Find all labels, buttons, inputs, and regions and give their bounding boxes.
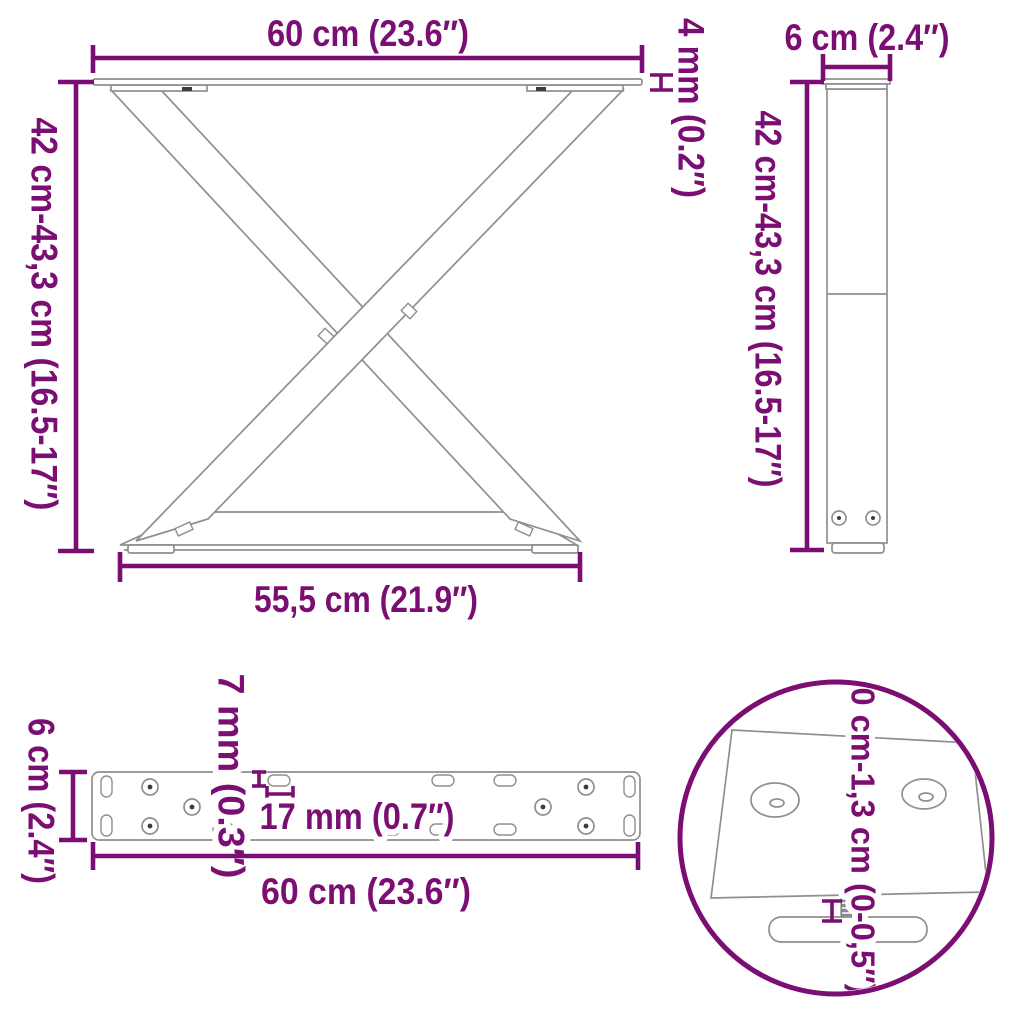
slot-length-label: 17 mm (0.7″) bbox=[260, 796, 455, 837]
front-left-foot bbox=[128, 545, 174, 553]
side-bracket-edge bbox=[826, 84, 887, 89]
front-left-bracket-bolt bbox=[182, 87, 192, 91]
screw-hole-center bbox=[190, 805, 195, 810]
front-bottom-width-label: 55,5 cm (21.9″) bbox=[254, 579, 478, 620]
side-column bbox=[827, 89, 887, 543]
front-view: 60 cm (23.6″) 42 cm-43,3 cm (16.5-17″) 4… bbox=[24, 13, 712, 620]
front-right-bracket-bolt bbox=[536, 87, 546, 91]
plate-thickness-label: 4 mm (0.2″) bbox=[671, 18, 712, 198]
screw-center bbox=[837, 516, 841, 520]
slot bbox=[101, 815, 112, 836]
slot bbox=[624, 815, 635, 836]
slot bbox=[101, 776, 112, 797]
plate-top-view: 6 cm (2.4″) 7 mm (0.3″) 17 mm (0.7″) 60 … bbox=[21, 674, 641, 913]
side-height-label: 42 cm-43,3 cm (16.5-17″) bbox=[748, 111, 789, 488]
slot bbox=[624, 776, 635, 797]
dimension-diagram: 60 cm (23.6″) 42 cm-43,3 cm (16.5-17″) 4… bbox=[0, 0, 1024, 1024]
screw-hole-center bbox=[584, 824, 589, 829]
plate-depth-label: 6 cm (2.4″) bbox=[21, 718, 62, 884]
screw-hole-center bbox=[541, 805, 546, 810]
diagram-canvas: 60 cm (23.6″) 42 cm-43,3 cm (16.5-17″) 4… bbox=[0, 0, 1024, 1024]
side-view: 6 cm (2.4″) 42 cm-43,3 cm (16.5-17″) bbox=[748, 17, 950, 553]
detail-view: 0 cm-1,3 cm (0-0,5″) bbox=[680, 682, 992, 995]
front-bottom-width-dimension bbox=[120, 552, 580, 582]
front-left-bracket bbox=[111, 85, 207, 91]
front-top-width-label: 60 cm (23.6″) bbox=[267, 13, 469, 54]
slot bbox=[494, 775, 516, 786]
slot bbox=[432, 775, 454, 786]
slot bbox=[268, 775, 290, 786]
screw-hole-center bbox=[584, 785, 589, 790]
screw-center bbox=[871, 516, 875, 520]
slot bbox=[494, 824, 516, 835]
side-width-label: 6 cm (2.4″) bbox=[785, 17, 950, 58]
side-width-dimension bbox=[823, 54, 890, 81]
plate-depth-dimension bbox=[59, 772, 87, 840]
front-height-label: 42 cm-43,3 cm (16.5-17″) bbox=[24, 118, 65, 511]
plate-thickness-indicator bbox=[650, 75, 673, 90]
slot-width-label: 7 mm (0.3″) bbox=[211, 674, 252, 879]
plate-width-dimension bbox=[93, 842, 638, 870]
front-right-foot bbox=[532, 545, 578, 553]
side-height-dimension bbox=[790, 82, 824, 550]
adjustment-range-label: 0 cm-1,3 cm (0-0,5″) bbox=[845, 688, 882, 995]
plate-width-label: 60 cm (23.6″) bbox=[261, 871, 471, 912]
front-top-plate bbox=[93, 79, 642, 85]
screw-hole-center bbox=[148, 785, 153, 790]
screw-hole-center bbox=[148, 824, 153, 829]
side-foot bbox=[832, 543, 884, 553]
